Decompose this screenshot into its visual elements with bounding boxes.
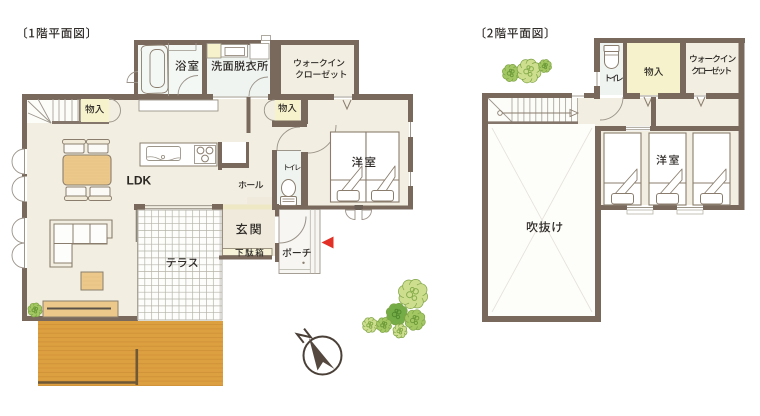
svg-text:LDK: LDK [127,173,152,187]
